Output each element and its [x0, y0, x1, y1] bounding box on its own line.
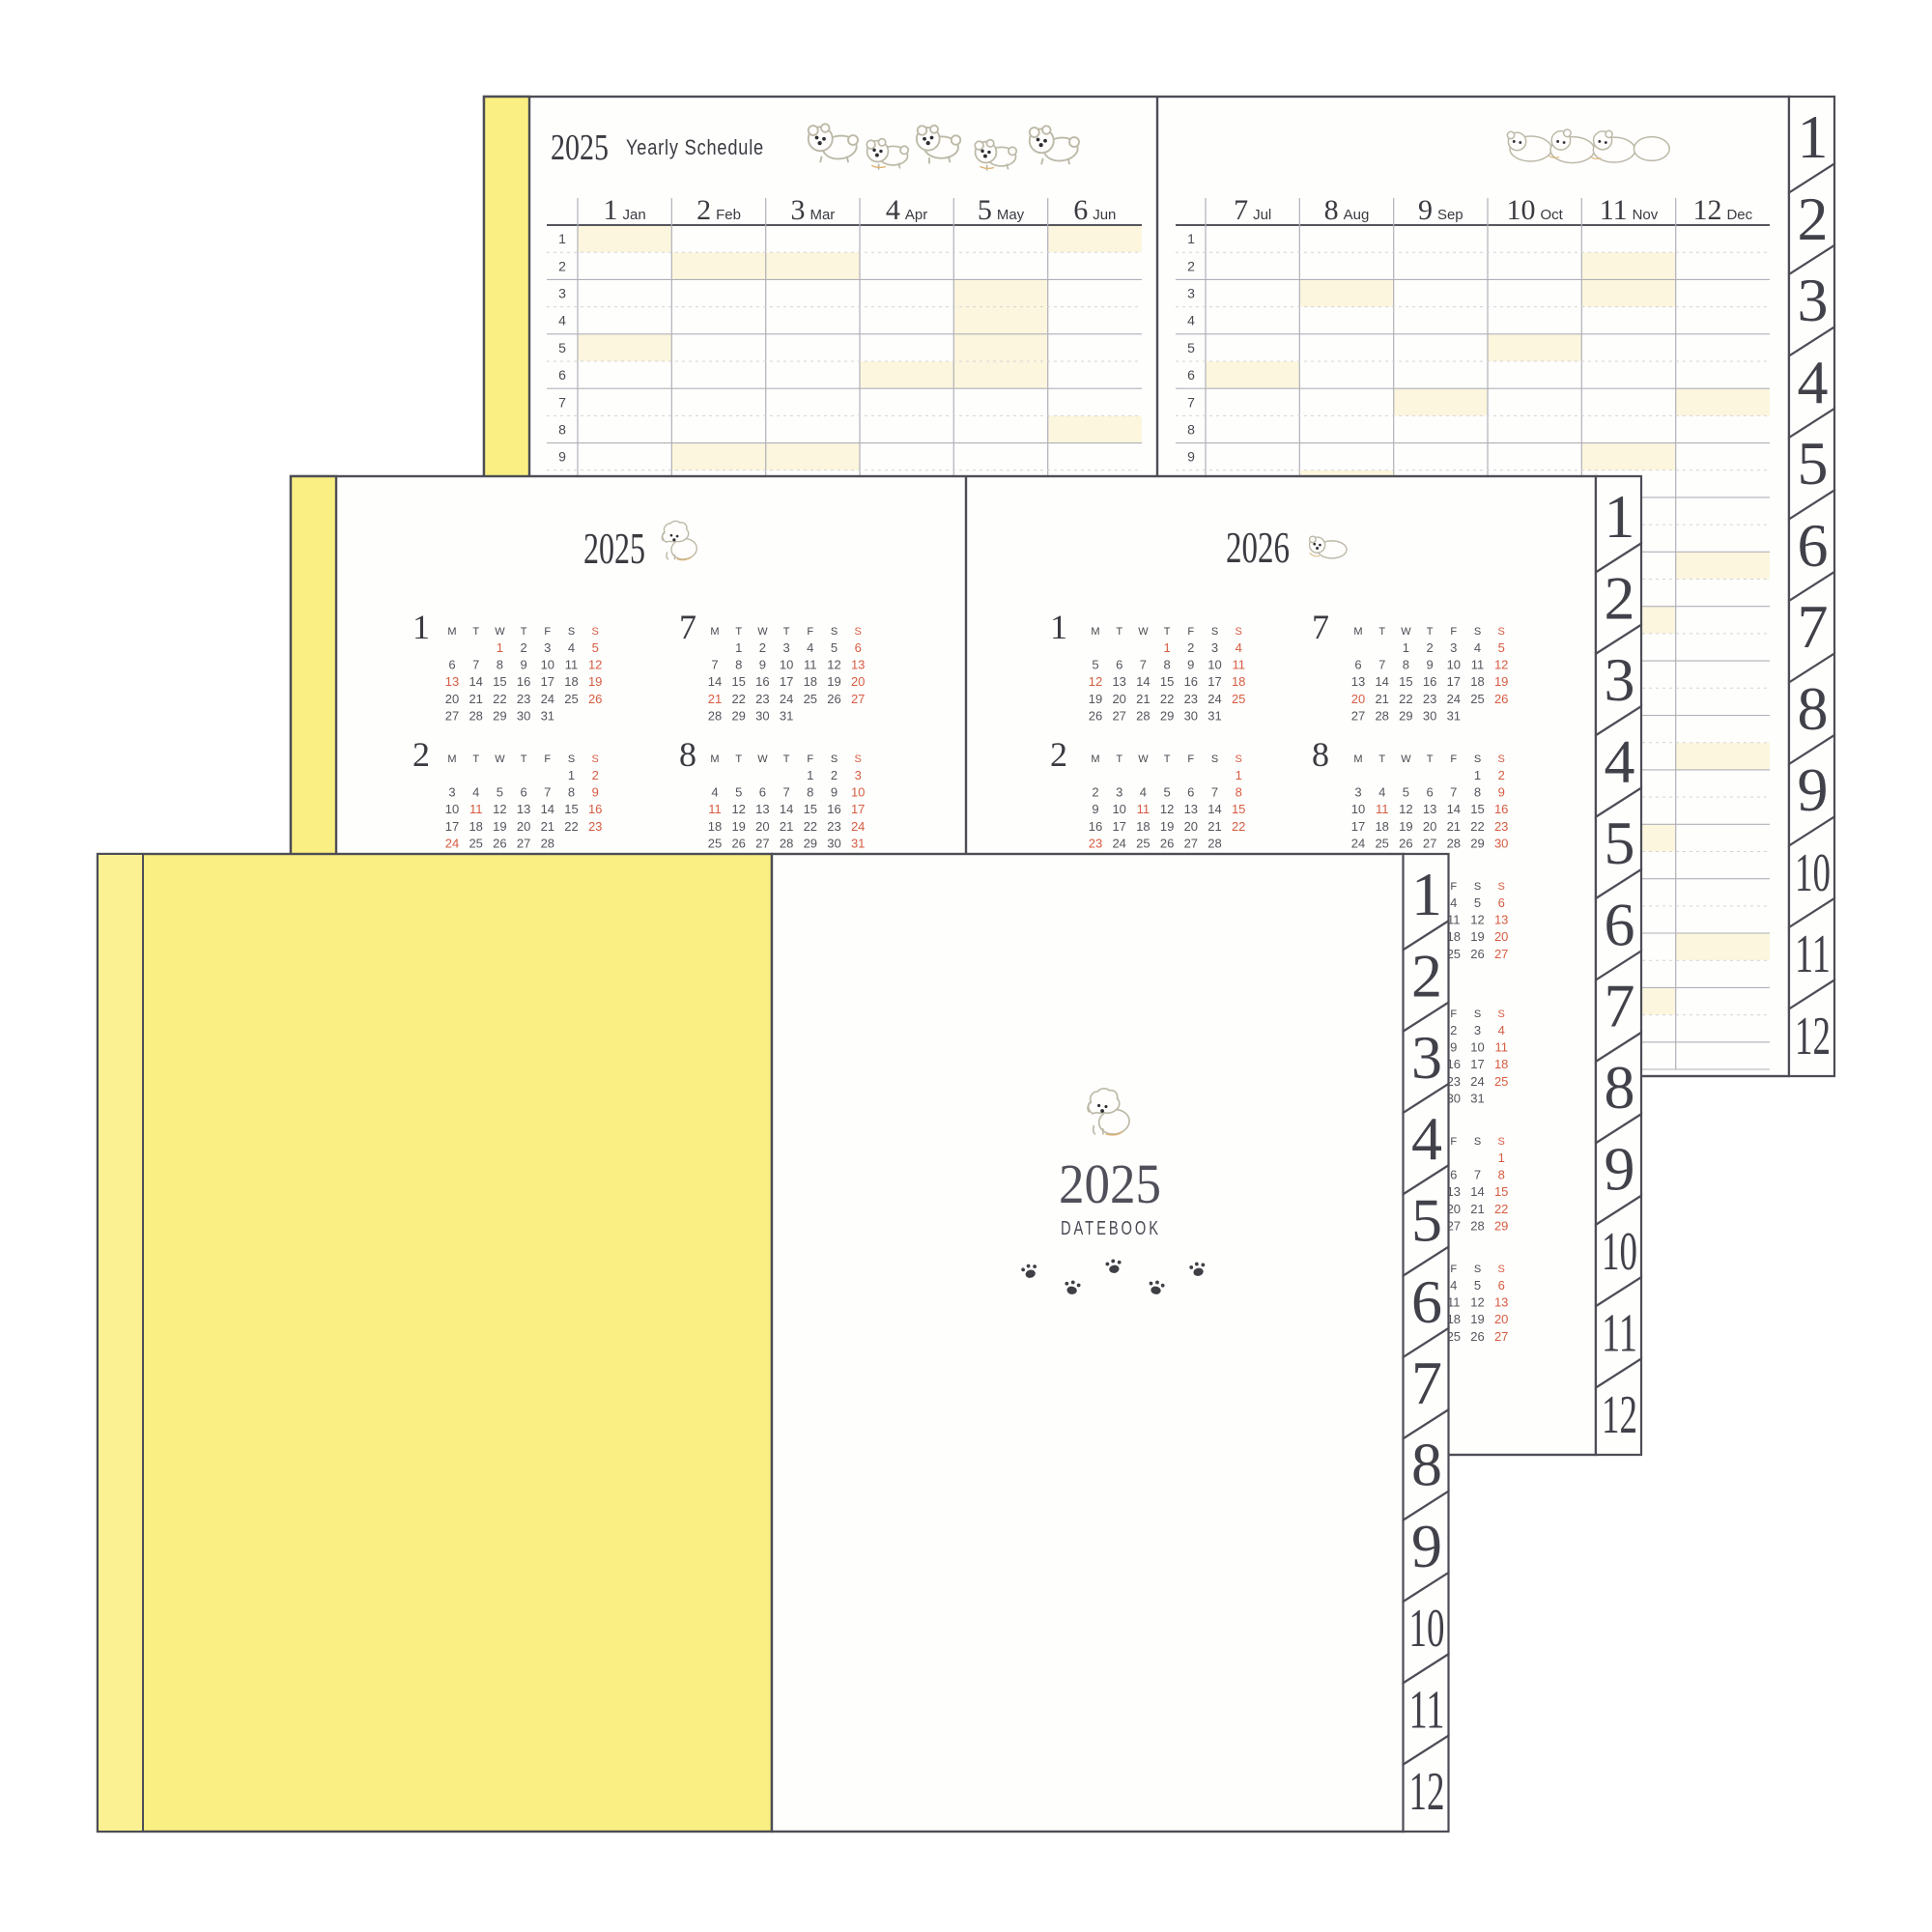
- svg-text:10: 10: [1207, 658, 1221, 672]
- svg-text:15: 15: [1470, 802, 1484, 816]
- svg-text:17: 17: [851, 802, 865, 816]
- svg-text:26: 26: [493, 836, 506, 850]
- svg-text:4: 4: [558, 313, 566, 328]
- svg-text:26: 26: [1399, 836, 1412, 850]
- svg-text:14: 14: [708, 674, 722, 689]
- svg-text:3: 3: [448, 785, 455, 800]
- svg-text:24: 24: [1470, 1074, 1484, 1089]
- svg-text:16: 16: [1184, 674, 1198, 689]
- svg-text:7: 7: [1411, 1349, 1442, 1417]
- svg-text:30: 30: [755, 708, 769, 723]
- svg-text:S: S: [592, 626, 599, 638]
- svg-text:8: 8: [807, 785, 813, 800]
- svg-text:24: 24: [541, 692, 554, 706]
- svg-text:5: 5: [1092, 658, 1098, 672]
- svg-text:8: 8: [1312, 735, 1329, 774]
- svg-text:W: W: [1138, 626, 1149, 638]
- svg-text:10: 10: [1470, 1040, 1484, 1055]
- svg-text:9: 9: [1092, 802, 1098, 816]
- svg-text:S: S: [855, 626, 862, 638]
- svg-text:24: 24: [445, 836, 459, 850]
- svg-text:W: W: [1401, 753, 1411, 765]
- svg-text:4: 4: [1140, 785, 1147, 800]
- svg-text:1: 1: [1403, 640, 1409, 655]
- svg-text:2: 2: [412, 735, 430, 774]
- svg-text:1: 1: [497, 640, 503, 655]
- svg-text:7: 7: [1312, 608, 1329, 646]
- svg-text:15: 15: [1232, 802, 1245, 816]
- svg-text:S: S: [1474, 753, 1481, 765]
- svg-text:S: S: [1211, 753, 1218, 765]
- svg-text:23: 23: [827, 819, 840, 834]
- svg-text:S: S: [831, 753, 838, 765]
- svg-text:6: 6: [1116, 658, 1122, 672]
- svg-text:11: 11: [1409, 1681, 1445, 1741]
- svg-text:9: 9: [1605, 1135, 1635, 1204]
- svg-text:28: 28: [1207, 836, 1221, 850]
- svg-text:13: 13: [851, 658, 865, 672]
- svg-text:15: 15: [1399, 674, 1412, 689]
- svg-text:26: 26: [1494, 692, 1508, 706]
- svg-text:23: 23: [1184, 692, 1198, 706]
- svg-text:23: 23: [1423, 692, 1436, 706]
- svg-text:12: 12: [1409, 1762, 1445, 1822]
- svg-text:20: 20: [1423, 819, 1436, 834]
- svg-text:11: 11: [804, 658, 817, 672]
- svg-text:15: 15: [493, 674, 506, 689]
- svg-text:10: 10: [1351, 802, 1365, 816]
- svg-text:T: T: [783, 626, 790, 638]
- svg-text:S: S: [1474, 1136, 1481, 1148]
- svg-text:5: 5: [592, 640, 599, 655]
- svg-text:T: T: [521, 753, 527, 765]
- svg-text:26: 26: [588, 692, 602, 706]
- svg-text:8: 8: [1411, 1431, 1442, 1499]
- svg-text:S: S: [1211, 626, 1218, 638]
- svg-text:28: 28: [1470, 1218, 1484, 1233]
- svg-text:3: 3: [1116, 785, 1122, 800]
- svg-text:29: 29: [493, 708, 506, 723]
- svg-text:6: 6: [1798, 511, 1829, 580]
- svg-text:5: 5: [1163, 785, 1170, 800]
- svg-text:T: T: [1427, 753, 1434, 765]
- svg-text:W: W: [495, 626, 505, 638]
- svg-text:M: M: [1091, 753, 1099, 765]
- svg-text:1: 1: [1498, 1151, 1505, 1165]
- svg-text:23: 23: [1494, 819, 1508, 834]
- svg-text:21: 21: [1207, 819, 1221, 834]
- svg-text:19: 19: [588, 674, 602, 689]
- svg-text:2: 2: [1050, 735, 1067, 774]
- svg-text:13: 13: [1184, 802, 1198, 816]
- svg-text:S: S: [568, 753, 575, 765]
- svg-text:6: 6: [1411, 1267, 1442, 1336]
- svg-text:5: 5: [1403, 785, 1409, 800]
- svg-text:15: 15: [1160, 674, 1174, 689]
- svg-text:5: 5: [1474, 1278, 1481, 1293]
- svg-text:S: S: [1474, 626, 1481, 638]
- svg-text:4: 4: [1474, 640, 1481, 655]
- svg-text:20: 20: [1112, 692, 1125, 706]
- svg-text:13: 13: [445, 674, 459, 689]
- svg-text:13: 13: [1423, 802, 1436, 816]
- svg-text:12: 12: [1470, 1295, 1484, 1310]
- svg-text:2: 2: [1498, 768, 1505, 782]
- svg-text:7: 7: [1211, 785, 1218, 800]
- svg-text:18: 18: [1494, 1057, 1508, 1071]
- svg-text:4: 4: [1450, 895, 1457, 910]
- svg-text:5: 5: [1498, 640, 1505, 655]
- svg-text:20: 20: [755, 819, 769, 834]
- svg-text:S: S: [1498, 1009, 1505, 1020]
- svg-text:3: 3: [1474, 1023, 1481, 1037]
- svg-text:S: S: [592, 753, 599, 765]
- svg-text:1: 1: [1163, 640, 1170, 655]
- svg-text:S: S: [1498, 881, 1505, 893]
- svg-text:18: 18: [1232, 674, 1245, 689]
- svg-text:8: 8: [1187, 422, 1195, 438]
- svg-text:1: 1: [807, 768, 813, 782]
- svg-text:22: 22: [1399, 692, 1412, 706]
- svg-text:4: 4: [807, 640, 813, 655]
- svg-text:M: M: [1353, 626, 1362, 638]
- svg-text:11: 11: [1232, 658, 1245, 672]
- svg-text:2: 2: [759, 640, 766, 655]
- svg-text:26: 26: [1160, 836, 1174, 850]
- svg-text:12: 12: [1089, 674, 1102, 689]
- svg-text:7: 7: [679, 608, 696, 646]
- svg-text:3: 3: [544, 640, 551, 655]
- svg-text:T: T: [472, 753, 479, 765]
- svg-text:26: 26: [1470, 1329, 1484, 1344]
- svg-text:25: 25: [1470, 692, 1484, 706]
- svg-text:F: F: [1450, 1009, 1457, 1020]
- svg-text:S: S: [1474, 1264, 1481, 1275]
- svg-text:14: 14: [780, 802, 793, 816]
- svg-text:7: 7: [472, 658, 479, 672]
- svg-text:25: 25: [1136, 836, 1150, 850]
- svg-text:9: 9: [558, 449, 566, 465]
- svg-text:21: 21: [541, 819, 554, 834]
- svg-text:1: 1: [1798, 102, 1829, 171]
- svg-text:2: 2: [1605, 564, 1635, 633]
- svg-text:21: 21: [780, 819, 793, 834]
- svg-text:26: 26: [1089, 708, 1102, 723]
- svg-text:6: 6: [558, 367, 566, 383]
- svg-text:16: 16: [1089, 819, 1102, 834]
- svg-text:19: 19: [827, 674, 840, 689]
- svg-text:16: 16: [517, 674, 530, 689]
- svg-text:14: 14: [1447, 802, 1461, 816]
- svg-text:24: 24: [1207, 692, 1221, 706]
- svg-text:2: 2: [1187, 258, 1195, 273]
- svg-text:17: 17: [1470, 1057, 1484, 1071]
- svg-text:6: 6: [759, 785, 766, 800]
- svg-text:4: 4: [1187, 313, 1195, 328]
- svg-text:4: 4: [472, 785, 479, 800]
- svg-text:S: S: [855, 753, 862, 765]
- svg-text:26: 26: [1470, 947, 1484, 961]
- svg-text:2: 2: [592, 768, 599, 782]
- svg-text:15: 15: [1494, 1184, 1508, 1199]
- svg-text:7: 7: [1187, 394, 1195, 410]
- svg-text:F: F: [1450, 753, 1457, 765]
- svg-text:21: 21: [1136, 692, 1150, 706]
- svg-text:22: 22: [731, 692, 745, 706]
- svg-text:4: 4: [568, 640, 575, 655]
- svg-text:3: 3: [855, 768, 862, 782]
- svg-text:S: S: [1474, 881, 1481, 893]
- svg-text:6: 6: [1354, 658, 1361, 672]
- svg-text:9: 9: [592, 785, 599, 800]
- svg-text:1: 1: [1187, 231, 1195, 246]
- svg-text:21: 21: [1447, 819, 1461, 834]
- svg-text:6: 6: [1187, 367, 1195, 383]
- svg-text:20: 20: [1351, 692, 1365, 706]
- svg-text:28: 28: [780, 836, 793, 850]
- svg-text:5: 5: [497, 785, 503, 800]
- svg-text:M: M: [447, 753, 456, 765]
- svg-text:31: 31: [1207, 708, 1221, 723]
- svg-text:W: W: [757, 626, 768, 638]
- svg-text:10: 10: [851, 785, 865, 800]
- svg-text:T: T: [735, 626, 742, 638]
- svg-text:29: 29: [1160, 708, 1174, 723]
- svg-text:13: 13: [1494, 913, 1508, 927]
- svg-text:13: 13: [755, 802, 769, 816]
- svg-text:20: 20: [517, 819, 530, 834]
- svg-text:28: 28: [1447, 836, 1461, 850]
- svg-text:2: 2: [1450, 1023, 1457, 1037]
- svg-text:F: F: [544, 626, 551, 638]
- svg-text:9: 9: [1187, 449, 1195, 465]
- svg-text:28: 28: [1136, 708, 1150, 723]
- svg-text:25: 25: [1375, 836, 1388, 850]
- svg-text:6: 6: [855, 640, 862, 655]
- svg-text:10: 10: [1602, 1222, 1637, 1282]
- svg-text:29: 29: [1399, 708, 1412, 723]
- svg-text:8: 8: [1798, 674, 1829, 743]
- svg-text:7: 7: [1140, 658, 1147, 672]
- svg-text:9: 9: [759, 658, 766, 672]
- svg-text:3: 3: [558, 286, 566, 301]
- svg-text:12: 12: [493, 802, 506, 816]
- svg-text:F: F: [1450, 1136, 1457, 1148]
- svg-text:11: 11: [1795, 924, 1831, 984]
- svg-text:6: 6: [1450, 1168, 1457, 1182]
- svg-text:1: 1: [1474, 768, 1481, 782]
- svg-text:20: 20: [1184, 819, 1198, 834]
- svg-text:7: 7: [544, 785, 551, 800]
- svg-text:18: 18: [1375, 819, 1388, 834]
- svg-text:5: 5: [735, 785, 742, 800]
- svg-text:9: 9: [1798, 755, 1829, 824]
- svg-text:8: 8: [568, 785, 575, 800]
- svg-text:14: 14: [469, 674, 482, 689]
- svg-text:3: 3: [1211, 640, 1218, 655]
- svg-text:10: 10: [1447, 658, 1461, 672]
- svg-text:20: 20: [1494, 1312, 1508, 1326]
- svg-text:5: 5: [1605, 809, 1635, 877]
- svg-text:M: M: [710, 753, 719, 765]
- svg-text:T: T: [1427, 626, 1434, 638]
- svg-text:10: 10: [445, 802, 459, 816]
- svg-text:S: S: [1498, 1136, 1505, 1148]
- svg-text:28: 28: [1375, 708, 1388, 723]
- svg-text:18: 18: [564, 674, 578, 689]
- svg-text:18: 18: [1136, 819, 1150, 834]
- svg-text:8: 8: [679, 735, 696, 774]
- svg-text:F: F: [1450, 1264, 1457, 1275]
- svg-text:25: 25: [1232, 692, 1245, 706]
- svg-text:6: 6: [1498, 895, 1505, 910]
- svg-text:2: 2: [520, 640, 526, 655]
- svg-text:31: 31: [541, 708, 554, 723]
- svg-text:3: 3: [1187, 286, 1195, 301]
- svg-text:31: 31: [780, 708, 793, 723]
- svg-text:17: 17: [1112, 819, 1125, 834]
- svg-text:12: 12: [1602, 1385, 1637, 1445]
- svg-text:19: 19: [493, 819, 506, 834]
- svg-text:20: 20: [445, 692, 459, 706]
- svg-text:4: 4: [1411, 1104, 1442, 1173]
- svg-text:1: 1: [1050, 608, 1067, 646]
- svg-text:3: 3: [1354, 785, 1361, 800]
- svg-text:8: 8: [1403, 658, 1409, 672]
- svg-text:27: 27: [1351, 708, 1365, 723]
- svg-text:13: 13: [517, 802, 530, 816]
- svg-text:22: 22: [1470, 819, 1484, 834]
- svg-text:2: 2: [831, 768, 838, 782]
- svg-text:21: 21: [708, 692, 722, 706]
- svg-text:7: 7: [1474, 1168, 1481, 1182]
- svg-text:27: 27: [755, 836, 769, 850]
- svg-text:8: 8: [1605, 1053, 1635, 1122]
- svg-text:8: 8: [1474, 785, 1481, 800]
- svg-text:6: 6: [1498, 1278, 1505, 1293]
- svg-text:11: 11: [565, 658, 579, 672]
- svg-text:31: 31: [851, 836, 865, 850]
- svg-text:10: 10: [780, 658, 793, 672]
- svg-text:24: 24: [1112, 836, 1125, 850]
- svg-text:20: 20: [1494, 929, 1508, 944]
- svg-text:19: 19: [1160, 819, 1174, 834]
- svg-text:29: 29: [1470, 836, 1484, 850]
- svg-text:6: 6: [1426, 785, 1433, 800]
- svg-text:18: 18: [708, 819, 722, 834]
- svg-text:S: S: [831, 626, 838, 638]
- svg-text:22: 22: [804, 819, 817, 834]
- svg-text:19: 19: [1399, 819, 1412, 834]
- svg-text:5: 5: [1187, 340, 1195, 355]
- svg-text:2: 2: [1426, 640, 1433, 655]
- svg-text:27: 27: [1494, 1329, 1508, 1344]
- svg-text:T: T: [1116, 626, 1122, 638]
- svg-text:27: 27: [1423, 836, 1436, 850]
- svg-text:S: S: [1498, 626, 1505, 638]
- svg-text:23: 23: [588, 819, 602, 834]
- svg-text:22: 22: [493, 692, 506, 706]
- svg-text:28: 28: [708, 708, 722, 723]
- svg-text:12: 12: [1470, 913, 1484, 927]
- svg-text:7: 7: [711, 658, 718, 672]
- svg-text:30: 30: [517, 708, 530, 723]
- svg-text:2025: 2025: [1059, 1152, 1161, 1215]
- svg-text:28: 28: [541, 836, 554, 850]
- svg-text:22: 22: [564, 819, 578, 834]
- svg-text:9: 9: [1187, 658, 1194, 672]
- svg-text:26: 26: [827, 692, 840, 706]
- svg-text:12: 12: [731, 802, 745, 816]
- svg-text:T: T: [472, 626, 479, 638]
- svg-text:W: W: [1138, 753, 1149, 765]
- svg-text:9: 9: [520, 658, 526, 672]
- svg-text:16: 16: [755, 674, 769, 689]
- svg-text:W: W: [757, 753, 768, 765]
- svg-text:23: 23: [1089, 836, 1102, 850]
- svg-text:2: 2: [1798, 185, 1829, 253]
- svg-text:25: 25: [1494, 1074, 1508, 1089]
- svg-text:DATEBOOK: DATEBOOK: [1061, 1218, 1161, 1239]
- svg-text:5: 5: [1798, 429, 1829, 497]
- svg-text:7: 7: [782, 785, 789, 800]
- svg-text:3: 3: [782, 640, 789, 655]
- svg-text:8: 8: [1236, 785, 1242, 800]
- svg-text:4: 4: [1450, 1278, 1457, 1293]
- svg-text:16: 16: [827, 802, 840, 816]
- svg-text:11: 11: [1376, 802, 1389, 816]
- svg-text:2: 2: [1092, 785, 1098, 800]
- svg-text:13: 13: [1494, 1295, 1508, 1310]
- svg-text:9: 9: [1498, 785, 1505, 800]
- svg-text:4: 4: [1798, 348, 1829, 416]
- svg-text:S: S: [1498, 753, 1505, 765]
- svg-text:10: 10: [1795, 843, 1831, 903]
- svg-text:29: 29: [1494, 1218, 1508, 1233]
- svg-text:17: 17: [1207, 674, 1221, 689]
- svg-text:7: 7: [1605, 972, 1635, 1040]
- svg-text:3: 3: [1605, 645, 1635, 714]
- svg-text:F: F: [1450, 626, 1457, 638]
- svg-text:8: 8: [497, 658, 503, 672]
- svg-text:W: W: [495, 753, 505, 765]
- svg-text:3: 3: [1411, 1023, 1442, 1092]
- svg-text:Yearly Schedule: Yearly Schedule: [626, 135, 764, 159]
- svg-text:1: 1: [1605, 482, 1635, 551]
- svg-text:3: 3: [1450, 640, 1457, 655]
- svg-text:2: 2: [1187, 640, 1194, 655]
- svg-text:14: 14: [1136, 674, 1150, 689]
- svg-text:24: 24: [780, 692, 793, 706]
- svg-text:21: 21: [1375, 692, 1388, 706]
- svg-text:19: 19: [1089, 692, 1102, 706]
- svg-text:T: T: [1164, 626, 1171, 638]
- svg-text:14: 14: [1470, 1184, 1484, 1199]
- svg-text:T: T: [1378, 626, 1385, 638]
- svg-text:25: 25: [804, 692, 817, 706]
- svg-text:24: 24: [1447, 692, 1461, 706]
- svg-text:6: 6: [520, 785, 526, 800]
- svg-text:15: 15: [731, 674, 745, 689]
- svg-text:18: 18: [469, 819, 482, 834]
- svg-text:2025: 2025: [583, 524, 645, 573]
- svg-text:M: M: [710, 626, 719, 638]
- svg-text:25: 25: [708, 836, 722, 850]
- svg-text:F: F: [1450, 881, 1457, 893]
- svg-text:9: 9: [1450, 1040, 1457, 1055]
- svg-text:F: F: [544, 753, 551, 765]
- svg-text:18: 18: [804, 674, 817, 689]
